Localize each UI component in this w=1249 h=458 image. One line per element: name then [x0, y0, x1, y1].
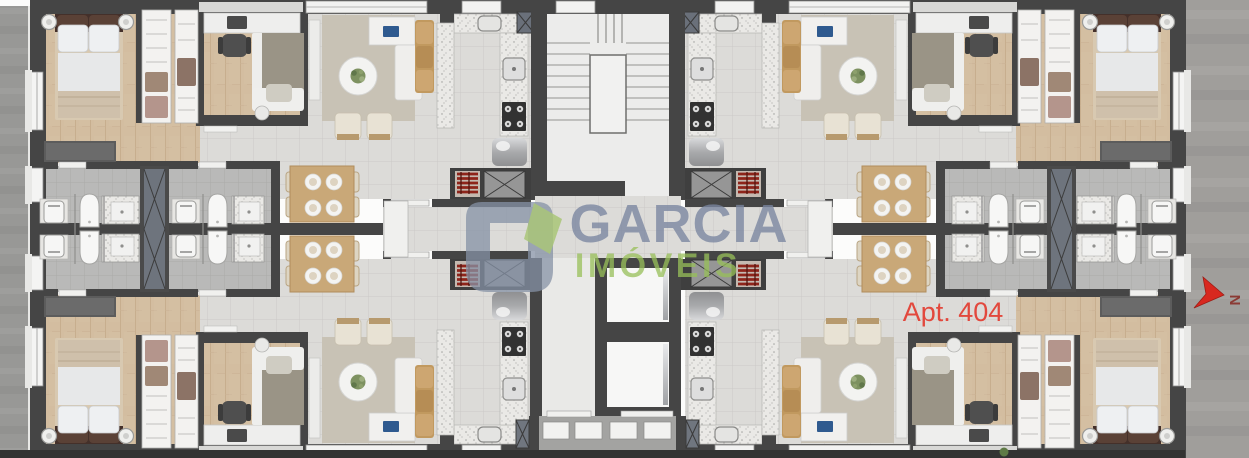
svg-text:Apt. 404: Apt. 404	[903, 297, 1004, 327]
svg-text:N: N	[1226, 295, 1243, 306]
svg-text:GARCIA: GARCIA	[570, 194, 789, 254]
svg-text:IMÓVEIS: IMÓVEIS	[575, 247, 741, 285]
